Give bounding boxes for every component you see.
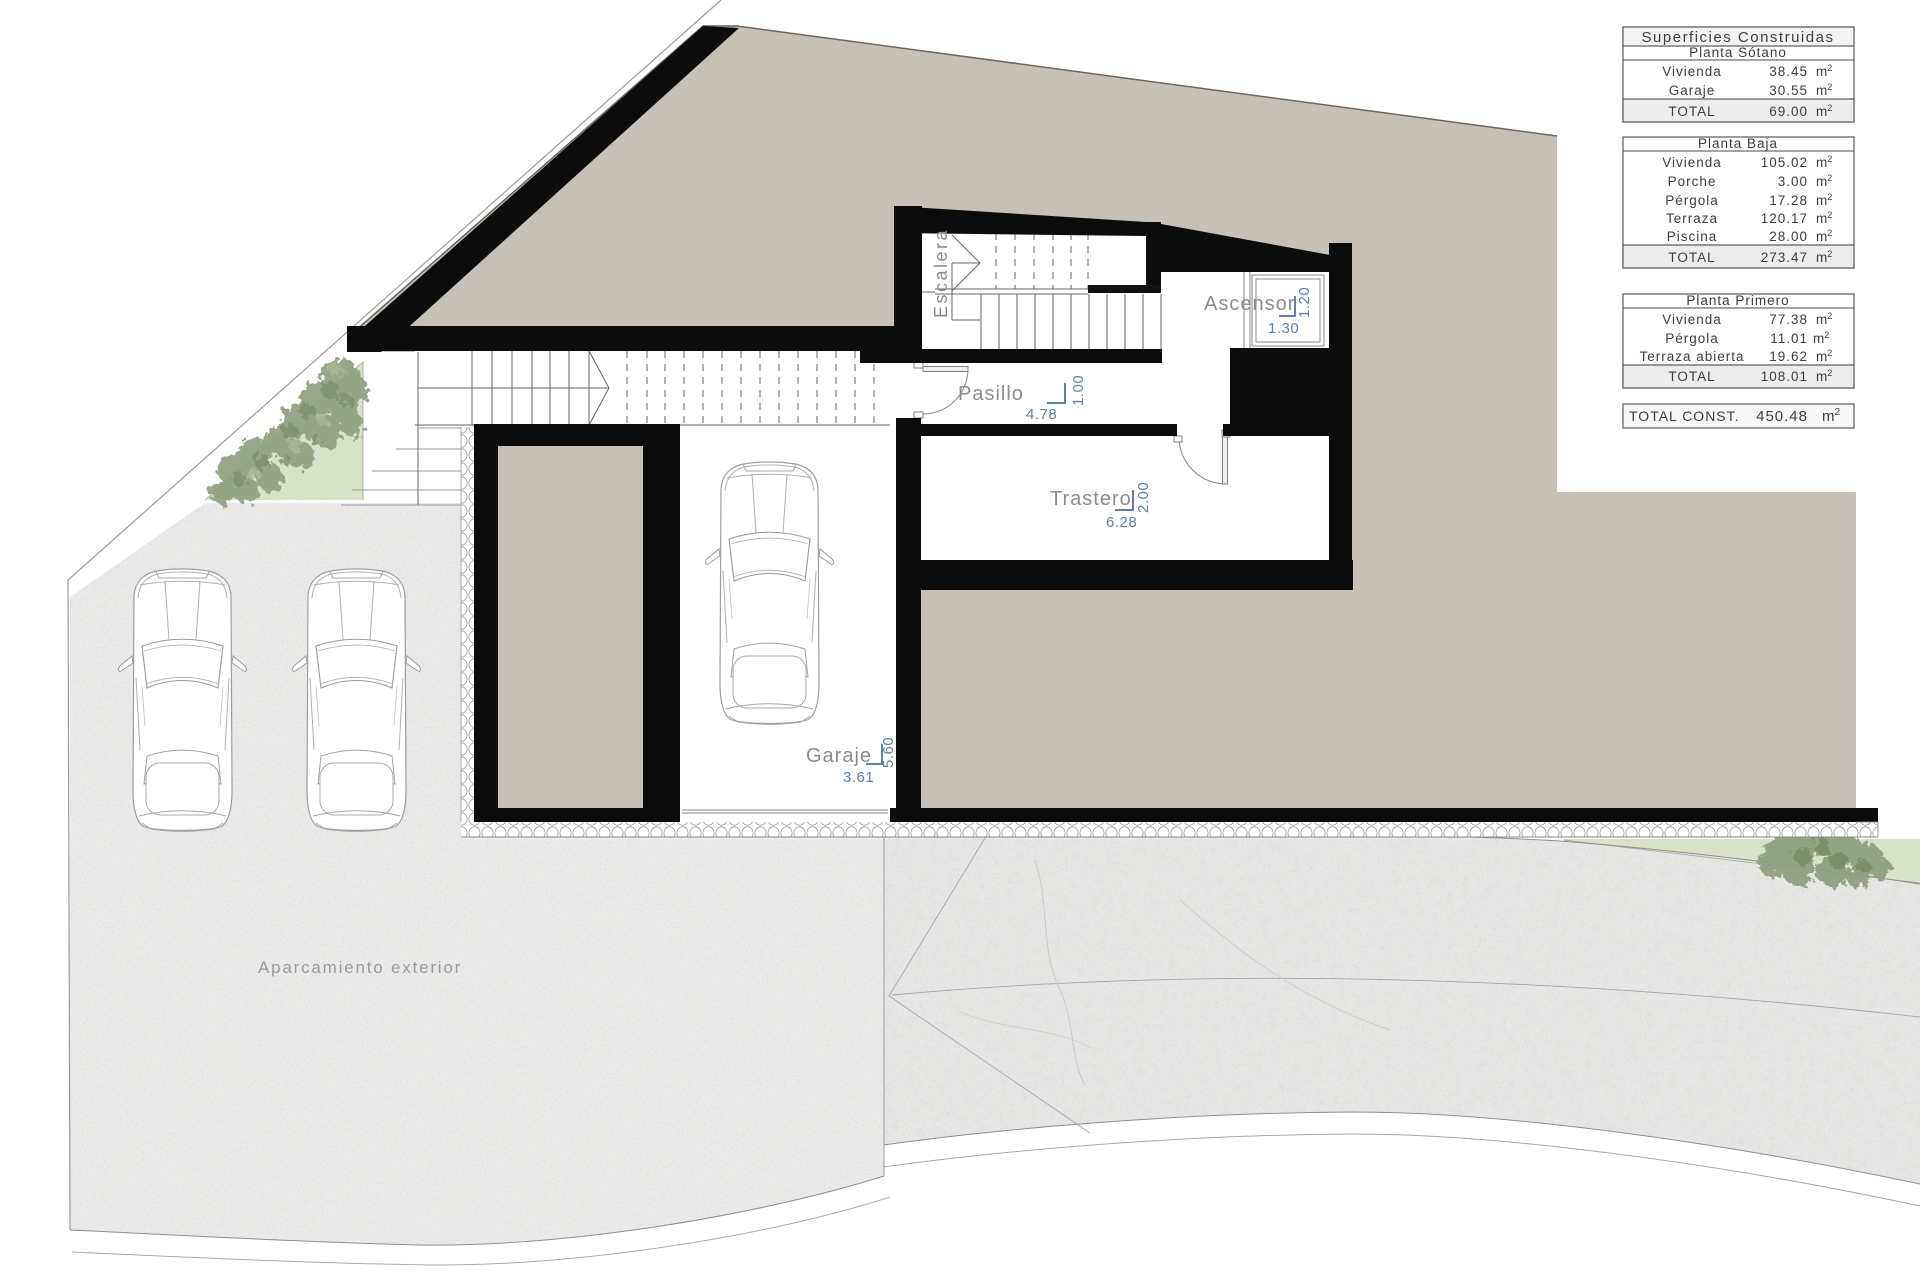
svg-text:273.47: 273.47 <box>1761 250 1808 265</box>
svg-text:Pérgola: Pérgola <box>1665 193 1719 208</box>
svg-text:Piscina: Piscina <box>1667 229 1718 244</box>
svg-text:17.28: 17.28 <box>1769 193 1808 208</box>
svg-text:450.48: 450.48 <box>1756 408 1808 425</box>
svg-text:108.01: 108.01 <box>1761 369 1808 384</box>
svg-text:TOTAL CONST.: TOTAL CONST. <box>1629 408 1740 424</box>
svg-text:1.30: 1.30 <box>1268 320 1299 337</box>
svg-text:28.00: 28.00 <box>1769 229 1808 244</box>
svg-text:Aparcamiento exterior: Aparcamiento exterior <box>258 958 462 977</box>
svg-text:TOTAL: TOTAL <box>1668 250 1715 265</box>
svg-text:38.45: 38.45 <box>1769 64 1808 79</box>
svg-text:Garaje: Garaje <box>1669 83 1716 98</box>
svg-text:Terraza: Terraza <box>1666 211 1718 226</box>
svg-text:30.55: 30.55 <box>1769 83 1808 98</box>
svg-text:1.00: 1.00 <box>1070 375 1087 406</box>
svg-text:Vivienda: Vivienda <box>1662 155 1722 170</box>
svg-text:2.00: 2.00 <box>1135 482 1152 513</box>
svg-text:Planta Sótano: Planta Sótano <box>1689 45 1787 60</box>
svg-text:Planta Primero: Planta Primero <box>1686 293 1789 308</box>
svg-text:TOTAL: TOTAL <box>1668 104 1715 119</box>
svg-text:4.78: 4.78 <box>1026 406 1057 423</box>
svg-text:1.20: 1.20 <box>1296 287 1313 318</box>
svg-text:Porche: Porche <box>1668 174 1717 189</box>
svg-text:Garaje: Garaje <box>806 745 872 767</box>
svg-text:6.28: 6.28 <box>1106 514 1137 531</box>
svg-text:Planta Baja: Planta Baja <box>1698 136 1778 151</box>
svg-text:105.02: 105.02 <box>1761 155 1808 170</box>
svg-text:Superficies Construidas: Superficies Construidas <box>1642 29 1835 46</box>
svg-text:TOTAL: TOTAL <box>1668 369 1715 384</box>
svg-text:3.61: 3.61 <box>843 769 874 786</box>
svg-text:11.01: 11.01 <box>1770 331 1808 346</box>
svg-text:Pérgola: Pérgola <box>1665 331 1719 346</box>
svg-text:77.38: 77.38 <box>1769 312 1808 327</box>
svg-text:69.00: 69.00 <box>1769 104 1808 119</box>
svg-text:120.17: 120.17 <box>1761 211 1808 226</box>
svg-text:Ascensor: Ascensor <box>1204 293 1295 315</box>
svg-text:Vivienda: Vivienda <box>1662 64 1722 79</box>
svg-text:Pasillo: Pasillo <box>958 383 1024 405</box>
svg-text:Escalera: Escalera <box>931 228 951 318</box>
svg-text:Trastero: Trastero <box>1050 488 1132 510</box>
svg-text:Vivienda: Vivienda <box>1662 312 1722 327</box>
svg-text:Terraza abierta: Terraza abierta <box>1639 349 1744 364</box>
svg-text:3.00: 3.00 <box>1778 174 1808 189</box>
svg-text:19.62: 19.62 <box>1769 349 1808 364</box>
